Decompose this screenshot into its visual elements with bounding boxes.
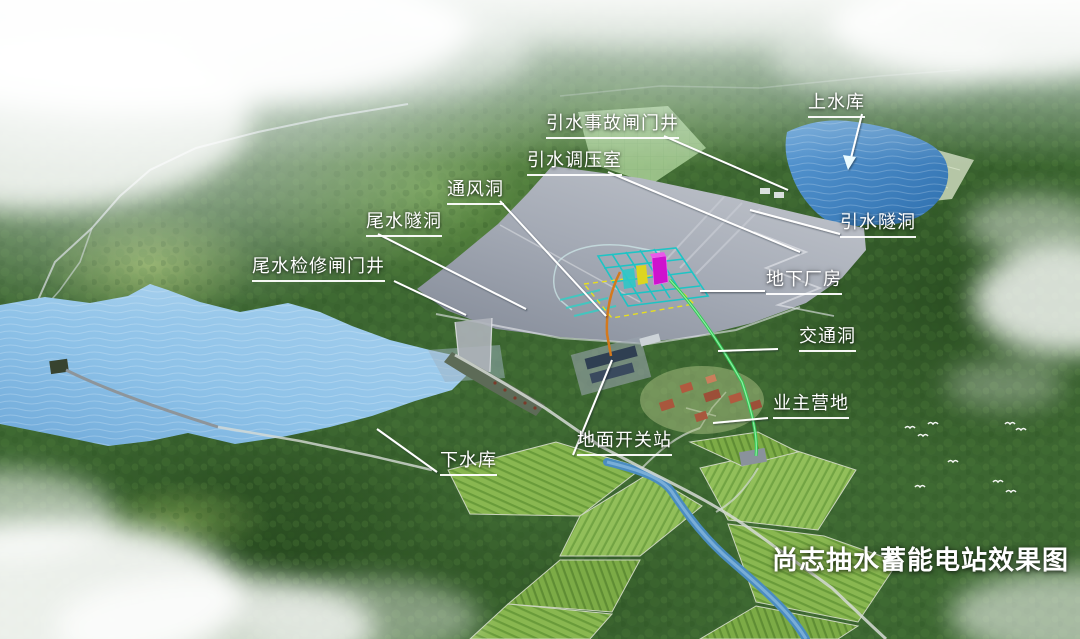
label-diversion-tunnel: 引水隧洞 (840, 214, 916, 238)
rendering-canvas: 上水库 引水事故闸门井 引水调压室 通风洞 尾水隧洞 尾水检修闸门井 引水隧洞 … (0, 0, 1080, 639)
label-tailwater-tunnel: 尾水隧洞 (366, 213, 442, 237)
label-ventilation-tunnel: 通风洞 (447, 181, 504, 205)
label-diversion-accident-gate-shaft: 引水事故闸门井 (546, 115, 679, 139)
label-diversion-surge-chamber: 引水调压室 (527, 152, 622, 176)
label-tailwater-maintenance-gate-shaft: 尾水检修闸门井 (252, 258, 385, 282)
label-traffic-tunnel: 交通洞 (799, 328, 856, 352)
image-title: 尚志抽水蓄能电站效果图 (772, 540, 1069, 577)
label-ground-switchyard: 地面开关站 (577, 432, 672, 456)
label-owner-camp: 业主营地 (773, 395, 849, 419)
label-upper-reservoir: 上水库 (808, 94, 865, 118)
label-lower-reservoir: 下水库 (440, 452, 497, 476)
label-underground-powerhouse: 地下厂房 (766, 271, 842, 295)
